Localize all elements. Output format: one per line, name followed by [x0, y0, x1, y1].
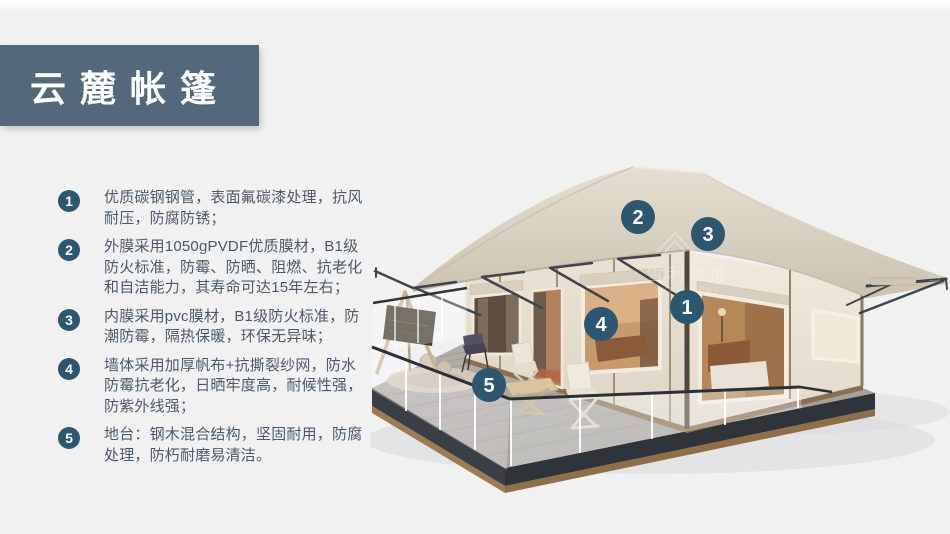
feature-item-3: 3 内膜采用pvc膜材，B1级防火标准，防潮防霉，隔热保暖，环保无异味；	[58, 307, 376, 348]
marker-label: 1	[681, 297, 692, 319]
slide: { "title": { "text": "云麓帐篷" }, "features…	[0, 0, 950, 534]
callout-marker-5: 5	[472, 368, 506, 402]
callout-marker-1: 1	[670, 290, 704, 324]
callout-marker-3: 3	[691, 217, 725, 251]
feature-text: 内膜采用pvc膜材，B1级防火标准，防潮防霉，隔热保暖，环保无异味；	[104, 307, 368, 348]
watermark-cn-partial: 雪利	[926, 265, 950, 284]
feature-number-badge: 4	[58, 358, 80, 380]
watermark-cn-text: 雪利篷房	[647, 265, 731, 284]
side-window	[697, 281, 789, 403]
title-banner: 云麓帐篷	[0, 45, 259, 126]
marker-label: 2	[632, 207, 643, 229]
marker-label: 4	[595, 314, 607, 336]
awning-roller	[870, 278, 916, 285]
feature-number-badge: 3	[58, 309, 80, 331]
marker-label: 5	[483, 375, 494, 397]
side-window-far	[813, 310, 858, 362]
feature-number-badge: 2	[58, 239, 80, 261]
feature-text: 地台：钢木混合结构，坚固耐用，防腐处理，防朽耐磨易清洁。	[104, 425, 368, 466]
top-edge-highlight	[0, 0, 950, 12]
feature-text: 墙体采用加厚帆布+抗撕裂纱网，防水防霉抗老化，日晒牢度高，耐候性强，防紫外线强；	[104, 356, 368, 418]
feature-text: 优质碳钢钢管，表面氟碳漆处理，抗风耐压，防腐防锈；	[104, 188, 368, 229]
page-title: 云麓帐篷	[0, 60, 230, 112]
tent-illustration: 雪利篷房 YUELI TENT 雪利 2 3 1 4 5	[370, 140, 950, 534]
feature-item-4: 4 墙体采用加厚帆布+抗撕裂纱网，防水防霉抗老化，日晒牢度高，耐候性强，防紫外线…	[58, 356, 376, 418]
feature-item-1: 1 优质碳钢钢管，表面氟碳漆处理，抗风耐压，防腐防锈；	[58, 188, 376, 229]
feature-number-badge: 1	[58, 190, 80, 212]
feature-item-2: 2 外膜采用1050gPVDF优质膜材，B1级防火标准，防霉、防晒、阻燃、抗老化…	[58, 237, 376, 299]
feature-number-badge: 5	[58, 427, 80, 449]
marker-label: 3	[702, 224, 713, 246]
feature-list: 1 优质碳钢钢管，表面氟碳漆处理，抗风耐压，防腐防锈； 2 外膜采用1050gP…	[58, 188, 376, 474]
callout-marker-4: 4	[584, 307, 618, 341]
feature-item-5: 5 地台：钢木混合结构，坚固耐用，防腐处理，防朽耐磨易清洁。	[58, 425, 376, 466]
feature-text: 外膜采用1050gPVDF优质膜材，B1级防火标准，防霉、防晒、阻燃、抗老化和自…	[104, 237, 368, 299]
callout-marker-2: 2	[621, 200, 655, 234]
